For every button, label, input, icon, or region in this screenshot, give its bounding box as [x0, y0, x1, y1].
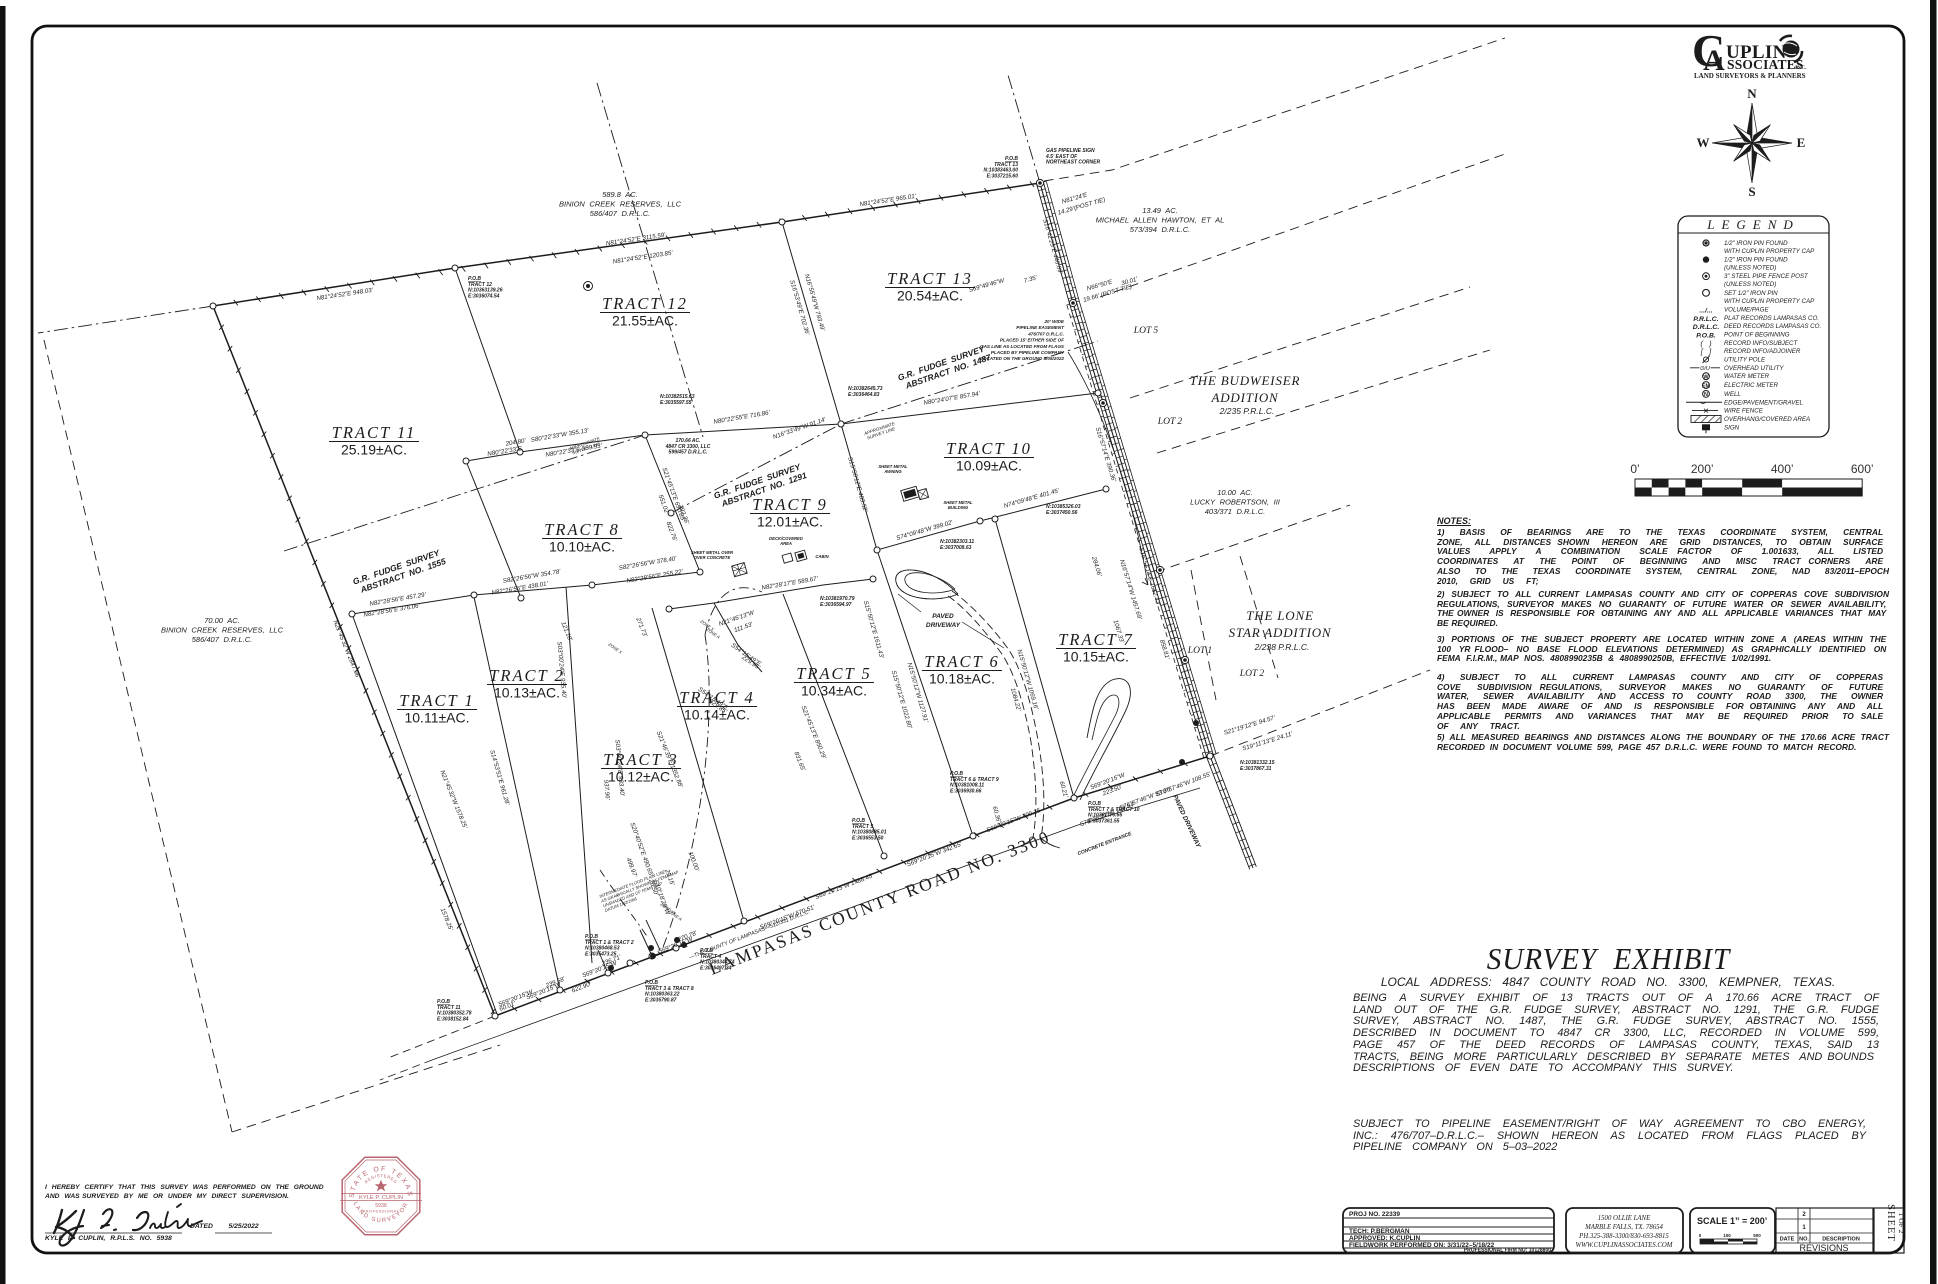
svg-text:SIGN: SIGN — [1724, 424, 1740, 431]
svg-text:E:3037008.63: E:3037008.63 — [940, 545, 972, 551]
svg-text:0: 0 — [1699, 1233, 1702, 1238]
svg-text:TECH: P.BERGMAN: TECH: P.BERGMAN — [1349, 1228, 1410, 1235]
svg-text:THE LONE: THE LONE — [1246, 608, 1313, 623]
svg-text:OVERHANG/COVERED AREA: OVERHANG/COVERED AREA — [1724, 416, 1810, 423]
svg-text:N21°45’32”W 1578.25’: N21°45’32”W 1578.25’ — [438, 769, 468, 830]
svg-text:AWNING: AWNING — [883, 469, 902, 474]
svg-text:LEGEND: LEGEND — [1706, 217, 1800, 232]
svg-text:TRACT 11: TRACT 11 — [332, 423, 417, 442]
svg-text:12.01±AC.: 12.01±AC. — [757, 514, 823, 530]
svg-text:E: E — [1797, 135, 1806, 150]
svg-text:1084.22’: 1084.22’ — [1009, 687, 1022, 712]
svg-text:D.R.L.C.: D.R.L.C. — [1693, 324, 1720, 331]
svg-text:P.R.L.C.: P.R.L.C. — [1693, 316, 1718, 323]
svg-text:LOT 2: LOT 2 — [1239, 669, 1265, 679]
svg-text:S14°53’51”E 961.28’: S14°53’51”E 961.28’ — [488, 749, 511, 806]
svg-text:1/2” IRON PIN FOUND: 1/2” IRON PIN FOUND — [1724, 240, 1788, 247]
svg-text:TRACT 13: TRACT 13 — [887, 269, 973, 288]
svg-text:PROJ NO. 22339: PROJ NO. 22339 — [1349, 1211, 1400, 1218]
svg-text:WIRE FENCE: WIRE FENCE — [1724, 408, 1764, 415]
svg-text:E:3036790.87: E:3036790.87 — [645, 997, 677, 1003]
svg-text:10.09±AC.: 10.09±AC. — [956, 458, 1022, 474]
svg-text:100: 100 — [1723, 1233, 1731, 1238]
svg-text:S15°50’12”E 1611.43’: S15°50’12”E 1611.43’ — [862, 600, 885, 660]
svg-text:S16°57’14”E 390.36’: S16°57’14”E 390.36’ — [1094, 426, 1117, 483]
svg-text:111.53’: 111.53’ — [733, 621, 754, 634]
svg-text:ZONE X: ZONE X — [607, 641, 624, 655]
svg-text:1578.25’: 1578.25’ — [439, 907, 455, 932]
svg-text:KYLE P. CUPLIN: KYLE P. CUPLIN — [359, 1195, 403, 1201]
svg-text:ELECTRIC METER: ELECTRIC METER — [1724, 382, 1779, 389]
svg-text:400’: 400’ — [1771, 462, 1794, 476]
svg-text:10.13±AC.: 10.13±AC. — [494, 685, 560, 701]
svg-text:WITH CUPLIN PROPERTY CAP: WITH CUPLIN PROPERTY CAP — [1724, 248, 1815, 255]
svg-text:E:3037450.56: E:3037450.56 — [1046, 510, 1078, 516]
svg-text:271.73’: 271.73’ — [634, 616, 649, 639]
svg-text:N82°28’56”E 255.22’: N82°28’56”E 255.22’ — [626, 568, 684, 584]
svg-text:GAS LINE AS LOCATED FROM FLAGS: GAS LINE AS LOCATED FROM FLAGS — [980, 344, 1065, 349]
svg-text:LOT 2: LOT 2 — [1157, 417, 1183, 427]
svg-text:OVER CONCRETE: OVER CONCRETE — [694, 555, 731, 560]
svg-text:MICHAEL ALLEN HAWTON, ET A: MICHAEL ALLEN HAWTON, ET AL — [1096, 216, 1225, 225]
svg-text:EDGE/PAVEMENT/GRAVEL: EDGE/PAVEMENT/GRAVEL — [1724, 399, 1804, 406]
svg-text:10.10±AC.: 10.10±AC. — [549, 539, 615, 555]
svg-text:SHEET: SHEET — [1885, 1204, 1896, 1242]
svg-text:E:3035597.55: E:3035597.55 — [660, 400, 692, 406]
svg-text:O/U: O/U — [1700, 366, 1710, 372]
svg-text:20’ WIDE: 20’ WIDE — [1044, 319, 1065, 324]
svg-text:25.19±AC.: 25.19±AC. — [341, 442, 407, 458]
svg-text:SCALE 1” = 200’: SCALE 1” = 200’ — [1697, 1216, 1767, 1226]
svg-text:831.65’: 831.65’ — [792, 751, 806, 773]
svg-text:E:3036594.97: E:3036594.97 — [820, 602, 852, 608]
svg-text:BUILDING: BUILDING — [948, 505, 969, 510]
svg-text:586/407 D.R.L.C.: 586/407 D.R.L.C. — [590, 209, 650, 218]
svg-text:10.34±AC.: 10.34±AC. — [801, 683, 867, 699]
svg-text:N80°22’33”E: N80°22’33”E — [487, 445, 524, 458]
svg-text:S: S — [1748, 184, 1755, 199]
svg-text:E:3037215.60: E:3037215.60 — [987, 173, 1019, 179]
svg-text:PROFESSIONAL: PROFESSIONAL — [362, 1209, 399, 1214]
svg-text:10.00 AC.: 10.00 AC. — [1217, 488, 1253, 497]
svg-text:[ ]: [ ] — [1700, 347, 1712, 356]
svg-text:TRACT 9: TRACT 9 — [752, 495, 828, 514]
svg-text:TRACT 1: TRACT 1 — [399, 691, 475, 710]
svg-text:1/2” IRON PIN FOUND: 1/2” IRON PIN FOUND — [1724, 257, 1788, 264]
svg-text:N80°24’07”E 857.94’: N80°24’07”E 857.94’ — [923, 390, 981, 406]
svg-text:APPROVED: K.CUPLIN: APPROVED: K.CUPLIN — [1349, 1235, 1420, 1242]
svg-text:10.11±AC.: 10.11±AC. — [404, 710, 469, 726]
svg-text:TRACT 8: TRACT 8 — [544, 520, 620, 539]
svg-text:600’: 600’ — [1851, 462, 1874, 476]
svg-text:WATER METER: WATER METER — [1724, 373, 1770, 380]
svg-text:20.54±AC.: 20.54±AC. — [897, 288, 963, 304]
svg-text:N: N — [1747, 86, 1757, 101]
svg-text:E:3036930.66: E:3036930.66 — [950, 788, 982, 794]
svg-text:PROFESSIONAL FIRM NO: 10128: PROFESSIONAL FIRM NO: 10128800 — [1464, 1248, 1551, 1254]
svg-text:SET 1/2” IRON PIN: SET 1/2” IRON PIN — [1724, 290, 1778, 297]
svg-text:ADDITION: ADDITION — [1210, 390, 1279, 405]
svg-text:UTILITY POLE: UTILITY POLE — [1724, 357, 1766, 364]
svg-text:NORTHEAST CORNER: NORTHEAST CORNER — [1046, 160, 1100, 166]
svg-text:E:3036553.50: E:3036553.50 — [852, 835, 884, 841]
svg-text:RECORD INFO/ADJOINER: RECORD INFO/ADJOINER — [1724, 348, 1801, 355]
svg-text:DATE: DATE — [1780, 1237, 1795, 1243]
svg-text:937.96’: 937.96’ — [602, 779, 611, 800]
svg-text:S15°50’12”E 1022.80’: S15°50’12”E 1022.80’ — [890, 670, 914, 730]
svg-text:2/238 P.R.L.C.: 2/238 P.R.L.C. — [1254, 642, 1310, 652]
svg-text:822.76’: 822.76’ — [665, 521, 679, 543]
svg-text:DESCRIPTION: DESCRIPTION — [1822, 1237, 1860, 1243]
svg-text:500: 500 — [1753, 1233, 1761, 1238]
svg-text:S76°57’46”W 108.55’: S76°57’46”W 108.55’ — [1155, 771, 1213, 799]
svg-text:E:3037867.31: E:3037867.31 — [1240, 766, 1272, 772]
svg-text:7.35’: 7.35’ — [1023, 274, 1038, 285]
svg-text:E:3037361.55: E:3037361.55 — [1088, 818, 1120, 824]
svg-text:586/407 D.R.L.C.: 586/407 D.R.L.C. — [192, 635, 252, 644]
svg-text:499.97’: 499.97’ — [625, 857, 639, 879]
svg-text:(UNLESS NOTED): (UNLESS NOTED) — [1724, 265, 1776, 272]
svg-text:POINT OF BEGINNING: POINT OF BEGINNING — [1724, 331, 1790, 338]
svg-text:PH.325-388-3300/830-693-8815: PH.325-388-3300/830-693-8815 — [1578, 1233, 1669, 1240]
svg-text:2/235 P.R.L.C.: 2/235 P.R.L.C. — [1219, 406, 1275, 416]
svg-text:403/371 D.R.L.C.: 403/371 D.R.L.C. — [1205, 507, 1265, 516]
svg-text:S15°50’12”E 483.52’: S15°50’12”E 483.52’ — [846, 456, 869, 513]
svg-text:LAMPASAS COUNTY ROAD NO. 3: LAMPASAS COUNTY ROAD NO. 3300 — [706, 826, 1053, 979]
svg-text:1 OF 2: 1 OF 2 — [1897, 1213, 1906, 1234]
svg-text:AREA: AREA — [779, 541, 792, 546]
svg-text:LOT 1: LOT 1 — [1187, 646, 1212, 656]
svg-text:WWW.CUPLINASSOCIATES.COM: WWW.CUPLINASSOCIATES.COM — [1576, 1242, 1673, 1249]
svg-text:3” STEEL PIPE FENCE POST: 3” STEEL PIPE FENCE POST — [1724, 273, 1809, 280]
svg-text:INC.: INC. — [1795, 65, 1807, 71]
svg-text:PLACED BY PIPELINE COMPANY: PLACED BY PIPELINE COMPANY — [991, 350, 1065, 355]
svg-text:E:3036074.54: E:3036074.54 — [468, 293, 500, 299]
svg-text:N80°22’55”E 716.86’: N80°22’55”E 716.86’ — [713, 409, 771, 425]
svg-text:BINION CREEK RESERVES, LLC: BINION CREEK RESERVES, LLC — [161, 626, 284, 635]
svg-text:N81°24’52”E 3115.59’: N81°24’52”E 3115.59’ — [606, 232, 667, 248]
svg-text:S21°45’13”E 850.29’: S21°45’13”E 850.29’ — [799, 705, 827, 761]
svg-text:OVERHEAD UTILITY: OVERHEAD UTILITY — [1724, 365, 1784, 372]
svg-text:W: W — [1703, 375, 1709, 381]
svg-text:(UNLESS NOTED): (UNLESS NOTED) — [1724, 281, 1776, 288]
svg-text:10.15±AC.: 10.15±AC. — [1063, 649, 1129, 665]
svg-text:10.18±AC.: 10.18±AC. — [929, 671, 995, 687]
svg-text:LAND SURVEYORS & PLANNERS: LAND SURVEYORS & PLANNERS — [1694, 72, 1806, 80]
svg-text:E:3036497.34: E:3036497.34 — [700, 965, 732, 971]
svg-text:476/707 D.R.L.C.: 476/707 D.R.L.C. — [1027, 331, 1064, 336]
svg-text:PIPELINE EASEMENT: PIPELINE EASEMENT — [1016, 325, 1065, 330]
svg-text:DEED RECORDS LAMPASAS CO.: DEED RECORDS LAMPASAS CO. — [1724, 323, 1821, 330]
svg-text:LUCKY ROBERTSON, III: LUCKY ROBERTSON, III — [1190, 498, 1280, 507]
svg-text:60.36’: 60.36’ — [991, 806, 1003, 825]
svg-text:13.49 AC.: 13.49 AC. — [1142, 206, 1178, 215]
svg-text:W: W — [1697, 135, 1710, 150]
svg-text:N82°28’17”E 589.67’: N82°28’17”E 589.67’ — [761, 575, 819, 591]
svg-text:EM: EM — [1702, 383, 1711, 389]
svg-text:599/457 D.R.L.C.: 599/457 D.R.L.C. — [669, 450, 708, 456]
svg-text:VOLUME/PAGE: VOLUME/PAGE — [1724, 306, 1769, 313]
svg-text:PAVED: PAVED — [932, 613, 954, 620]
svg-text:DRIVEWAY: DRIVEWAY — [926, 622, 961, 629]
svg-text:WELL: WELL — [1724, 391, 1741, 398]
svg-text:N16°33’49”W 91.14’: N16°33’49”W 91.14’ — [772, 416, 827, 441]
svg-text:551.02’: 551.02’ — [657, 494, 671, 516]
svg-text:TRACT 2: TRACT 2 — [489, 666, 565, 685]
svg-text:THE BUDWEISER: THE BUDWEISER — [1190, 373, 1300, 388]
svg-text:.../...: .../... — [1699, 307, 1712, 314]
svg-text:E:3036464.83: E:3036464.83 — [848, 392, 880, 398]
svg-text:2: 2 — [1802, 1212, 1806, 1218]
svg-text:WITH CUPLIN PROPERTY CAP: WITH CUPLIN PROPERTY CAP — [1724, 298, 1815, 305]
svg-text:E:3038152.84: E:3038152.84 — [437, 1016, 469, 1022]
svg-text:MARBLE FALLS, TX. 78654: MARBLE FALLS, TX. 78654 — [1584, 1224, 1663, 1231]
svg-text:PLAT RECORDS LAMPASAS CO.: PLAT RECORDS LAMPASAS CO. — [1724, 315, 1819, 322]
svg-text:SSOCIATES: SSOCIATES — [1727, 57, 1804, 72]
svg-text:573/394 D.R.L.C.: 573/394 D.R.L.C. — [1130, 225, 1190, 234]
svg-text:BINION CREEK RESERVES, LLC: BINION CREEK RESERVES, LLC — [559, 200, 682, 209]
svg-text:N16°57’14”W 1457.69’: N16°57’14”W 1457.69’ — [1118, 559, 1143, 621]
svg-text:200’: 200’ — [1691, 462, 1714, 476]
svg-text:1: 1 — [1802, 1225, 1806, 1231]
svg-text:CONCRETE ENTRANCE: CONCRETE ENTRANCE — [1077, 831, 1133, 857]
svg-text:N82°26’56”E 438.01’: N82°26’56”E 438.01’ — [491, 580, 549, 596]
svg-text:TRACT 5: TRACT 5 — [796, 664, 872, 683]
svg-text:TRACT 12: TRACT 12 — [602, 294, 688, 313]
svg-text:70.00 AC.: 70.00 AC. — [204, 616, 240, 625]
svg-text:STAR ADDITION: STAR ADDITION — [1229, 625, 1332, 640]
svg-text:CABIN: CABIN — [815, 554, 829, 559]
svg-text:REVISIONS: REVISIONS — [1799, 1243, 1848, 1253]
svg-text:21.55±AC.: 21.55±AC. — [612, 313, 678, 329]
svg-text:S69°49’46”W: S69°49’46”W — [968, 277, 1006, 294]
svg-text:0’: 0’ — [1630, 462, 1639, 476]
svg-text:LOT 5: LOT 5 — [1133, 326, 1159, 336]
svg-text:S82°26’56”W 378.40’: S82°26’56”W 378.40’ — [618, 555, 678, 572]
svg-text:PAVED DRIVEWAY: PAVED DRIVEWAY — [1171, 794, 1202, 850]
svg-text:284.06’: 284.06’ — [1090, 555, 1103, 578]
svg-text:RECORD INFO/SUBJECT: RECORD INFO/SUBJECT — [1724, 340, 1798, 347]
svg-text:121.18’: 121.18’ — [559, 621, 573, 643]
svg-text:PLACED 15’ EITHER SIDE OF: PLACED 15’ EITHER SIDE OF — [1000, 338, 1064, 343]
svg-text:NO.: NO. — [1799, 1237, 1809, 1243]
svg-text:N: N — [1704, 392, 1708, 398]
svg-text:TRACT 6: TRACT 6 — [924, 652, 1000, 671]
svg-text:1500 OLLIE LANE: 1500 OLLIE LANE — [1598, 1215, 1651, 1222]
svg-text:N81°24’52”E 1203.85’: N81°24’52”E 1203.85’ — [612, 249, 674, 265]
svg-text:TRACT 10: TRACT 10 — [946, 439, 1032, 458]
svg-text:LOCATED ON THE GROUND 5/05/202: LOCATED ON THE GROUND 5/05/2022 — [980, 356, 1064, 361]
svg-text:589.8 AC.: 589.8 AC. — [602, 190, 638, 199]
svg-text:60.21’: 60.21’ — [1058, 781, 1070, 800]
svg-text:E:3035473.25: E:3035473.25 — [585, 951, 617, 957]
